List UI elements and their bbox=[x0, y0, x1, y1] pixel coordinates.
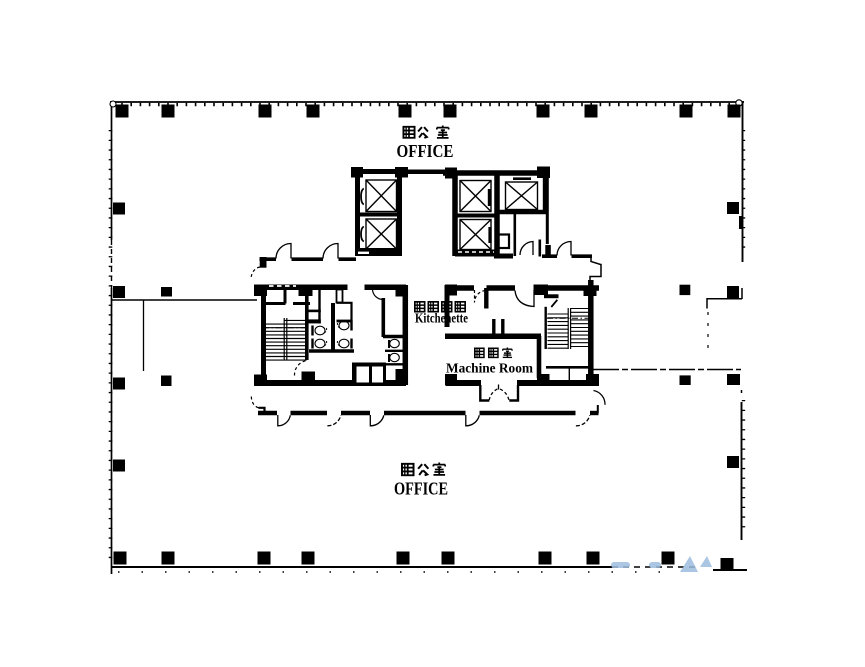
svg-text:Kitchenette: Kitchenette bbox=[415, 311, 468, 326]
svg-text:OFFICE: OFFICE bbox=[394, 479, 448, 499]
svg-text:Machine Room: Machine Room bbox=[446, 361, 534, 376]
svg-text:OFFICE: OFFICE bbox=[397, 141, 454, 161]
